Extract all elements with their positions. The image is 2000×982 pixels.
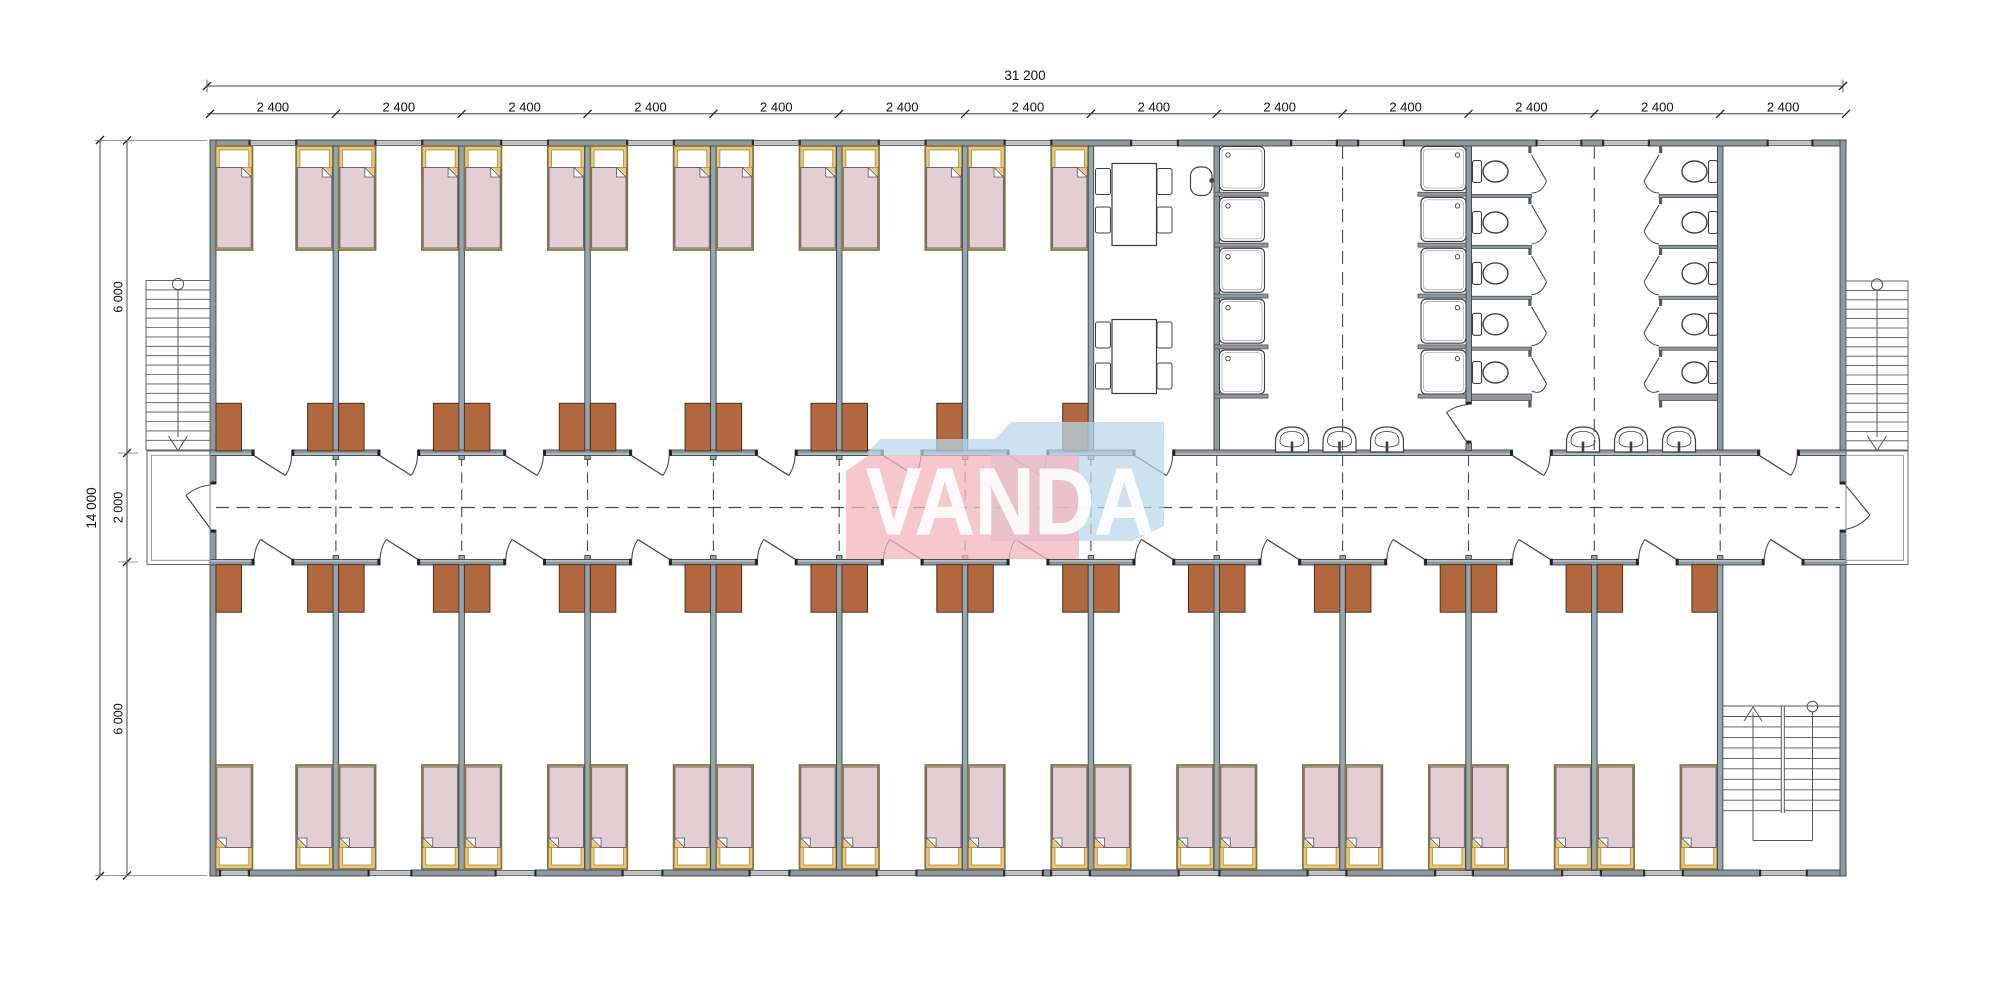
svg-text:2 400: 2 400	[634, 99, 667, 114]
svg-text:2 400: 2 400	[1012, 99, 1045, 114]
svg-text:2 400: 2 400	[886, 99, 919, 114]
svg-text:2 400: 2 400	[1515, 99, 1548, 114]
svg-text:6 000: 6 000	[112, 281, 126, 312]
svg-text:2 400: 2 400	[1641, 99, 1674, 114]
svg-text:2 000: 2 000	[112, 492, 126, 523]
svg-text:14 000: 14 000	[84, 487, 99, 528]
svg-text:2 400: 2 400	[508, 99, 541, 114]
svg-text:2 400: 2 400	[257, 99, 290, 114]
svg-text:2 400: 2 400	[1767, 99, 1800, 114]
svg-text:2 400: 2 400	[1138, 99, 1171, 114]
svg-text:2 400: 2 400	[383, 99, 416, 114]
svg-text:6 000: 6 000	[112, 703, 126, 734]
svg-text:2 400: 2 400	[1263, 99, 1296, 114]
svg-text:31 200: 31 200	[1004, 68, 1045, 83]
svg-text:VANDA: VANDA	[866, 449, 1154, 555]
svg-text:2 400: 2 400	[760, 99, 793, 114]
svg-text:2 400: 2 400	[1389, 99, 1422, 114]
